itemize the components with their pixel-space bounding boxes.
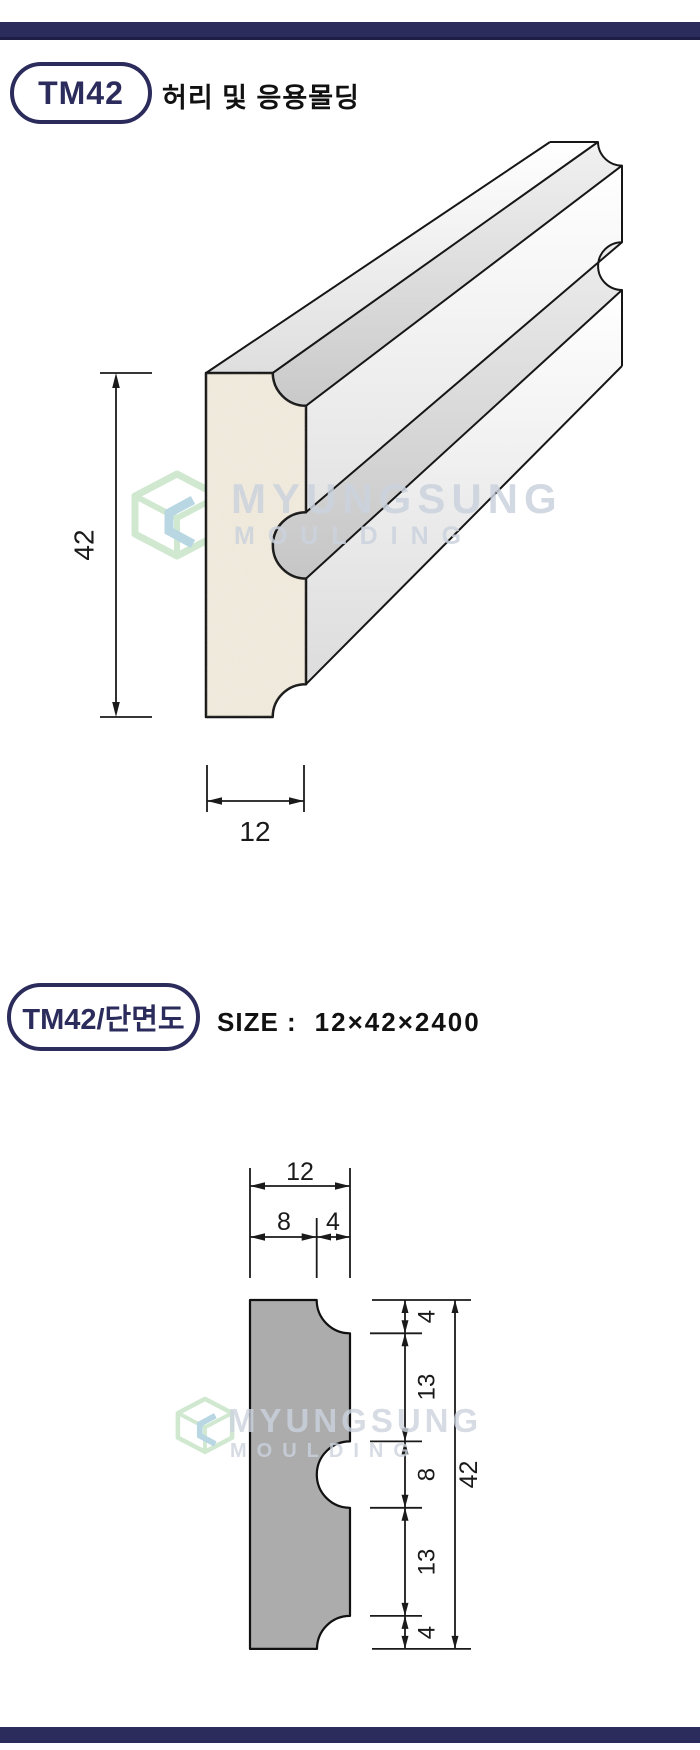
section-badge: TM42/단면도	[7, 983, 200, 1051]
watermark-line1: MYUNGSUNG	[228, 1404, 482, 1437]
watermark-line2: MOULDING	[230, 1441, 482, 1461]
catalog-page: TM42 허리 및 응용몰딩	[0, 0, 700, 1750]
dim-label-8: 8	[277, 1208, 291, 1236]
arrow-up-icon	[112, 373, 120, 388]
watermark-line1: MYUNGSUNG	[231, 478, 563, 520]
arrow-right-icon	[289, 797, 304, 804]
cross-section-shape	[250, 1300, 350, 1649]
width-dim-label: 12	[239, 816, 270, 847]
dim-label-8-middle: 8	[414, 1468, 441, 1481]
dim-label-13-lower: 13	[414, 1549, 441, 1576]
size-label: SIZE :	[217, 1007, 297, 1037]
height-dimension-42	[100, 373, 152, 717]
height-dim-label: 42	[69, 529, 100, 560]
moulding-3d-drawing: 42 12	[0, 0, 700, 880]
size-spec-line: SIZE :12×42×2400	[217, 1007, 481, 1038]
arrow-right-icon	[302, 1233, 317, 1240]
watermark-text: MYUNGSUNG MOULDING	[228, 1404, 482, 1461]
dim-label-42-overall: 42	[455, 1461, 483, 1489]
watermark-line2: MOULDING	[234, 524, 563, 549]
size-value: 12×42×2400	[315, 1007, 481, 1037]
moulding-solid	[206, 142, 622, 717]
arrow-left-icon	[250, 1182, 265, 1189]
dim-label-4-bottom: 4	[414, 1626, 441, 1639]
width-dimension-12	[207, 765, 304, 812]
dim-label-4: 4	[326, 1208, 340, 1236]
arrow-right-icon	[335, 1182, 350, 1189]
watermark-text: MYUNGSUNG MOULDING	[231, 478, 563, 549]
section-badge-label: TM42/단면도	[22, 996, 184, 1038]
arrow-left-icon	[207, 797, 222, 804]
arrow-left-icon	[250, 1233, 265, 1240]
bottom-border-bar	[0, 1727, 700, 1743]
dim-label-13-upper: 13	[414, 1374, 441, 1401]
arrow-down-icon	[112, 702, 120, 717]
dim-label-4-top: 4	[414, 1310, 441, 1323]
dim-label-12: 12	[286, 1158, 314, 1186]
